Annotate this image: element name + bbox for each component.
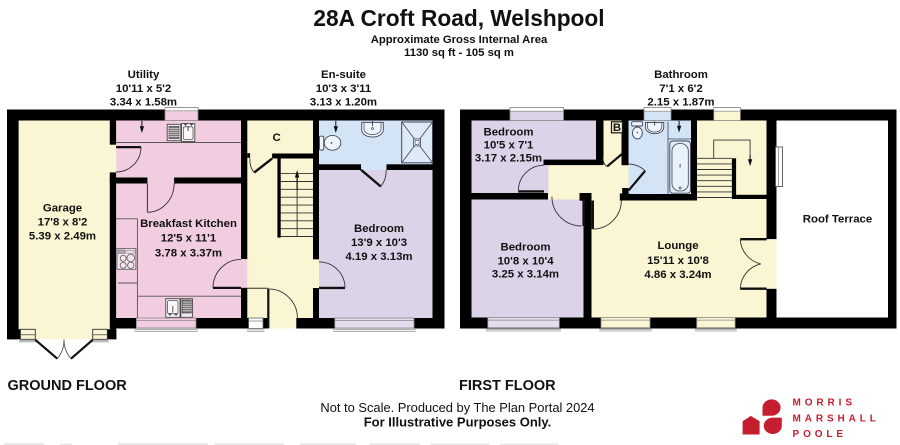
svg-text:POOLE: POOLE (793, 429, 848, 440)
svg-text:1130 sq ft - 105 sq m: 1130 sq ft - 105 sq m (404, 47, 514, 59)
svg-text:B: B (613, 122, 621, 134)
svg-text:4.86 x 3.24m: 4.86 x 3.24m (644, 269, 711, 281)
svg-text:MARSHALL: MARSHALL (793, 413, 880, 424)
svg-text:7'1 x 6'2: 7'1 x 6'2 (659, 83, 702, 95)
svg-text:28A Croft Road, Welshpool: 28A Croft Road, Welshpool (313, 5, 604, 31)
svg-text:10'11 x 5'2: 10'11 x 5'2 (116, 83, 171, 95)
svg-text:Bathroom: Bathroom (654, 69, 708, 81)
svg-text:FIRST FLOOR: FIRST FLOOR (459, 378, 556, 394)
svg-text:3.17 x 2.15m: 3.17 x 2.15m (475, 153, 542, 165)
svg-text:3.25 x 3.14m: 3.25 x 3.14m (492, 269, 559, 281)
svg-text:3.13 x 1.20m: 3.13 x 1.20m (310, 97, 377, 109)
svg-text:En-suite: En-suite (321, 69, 366, 81)
svg-text:4.19 x 3.13m: 4.19 x 3.13m (345, 251, 412, 263)
svg-text:3.34 x 1.58m: 3.34 x 1.58m (110, 97, 177, 109)
svg-text:10'5 x 7'1: 10'5 x 7'1 (484, 139, 534, 151)
svg-text:Lounge: Lounge (657, 240, 698, 252)
svg-text:Bedroom: Bedroom (501, 242, 551, 254)
svg-text:C: C (272, 132, 280, 144)
svg-text:12'5 x 11'1: 12'5 x 11'1 (161, 233, 217, 245)
svg-text:MORRIS: MORRIS (793, 398, 856, 409)
svg-text:Roof Terrace: Roof Terrace (803, 214, 872, 226)
svg-text:Bedroom: Bedroom (484, 126, 534, 138)
svg-text:Garage: Garage (43, 203, 82, 215)
svg-text:17'8 x 8'2: 17'8 x 8'2 (38, 217, 88, 229)
svg-text:Utility: Utility (128, 69, 160, 81)
svg-text:3.78 x 3.37m: 3.78 x 3.37m (155, 247, 222, 259)
svg-text:2.15 x 1.87m: 2.15 x 1.87m (647, 97, 714, 109)
svg-text:15'11 x 10'8: 15'11 x 10'8 (647, 255, 709, 267)
svg-text:Approximate Gross Internal Are: Approximate Gross Internal Area (371, 34, 548, 46)
svg-text:5.39 x 2.49m: 5.39 x 2.49m (29, 231, 96, 243)
svg-text:Bedroom: Bedroom (354, 223, 404, 235)
svg-text:10'8 x 10'4: 10'8 x 10'4 (497, 255, 554, 267)
svg-text:Not to Scale. Produced by The: Not to Scale. Produced by The Plan Porta… (320, 400, 594, 415)
svg-text:10'3 x 3'11: 10'3 x 3'11 (316, 83, 372, 95)
svg-text:For Illustrative Purposes Only: For Illustrative Purposes Only. (364, 415, 552, 430)
svg-text:13'9 x 10'3: 13'9 x 10'3 (351, 237, 407, 249)
svg-text:Breakfast Kitchen: Breakfast Kitchen (140, 218, 237, 230)
svg-text:GROUND FLOOR: GROUND FLOOR (8, 378, 128, 394)
